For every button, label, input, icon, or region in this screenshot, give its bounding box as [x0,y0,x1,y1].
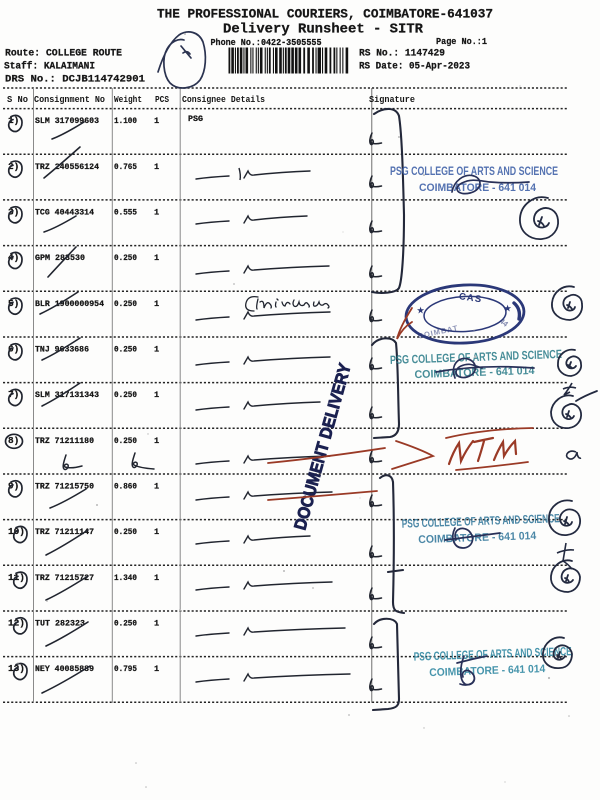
svg-text:1: 1 [154,664,159,674]
svg-text:COIMBATORE - 641 014: COIMBATORE - 641 014 [418,530,537,546]
svg-text:Signature: Signature [369,95,415,105]
svg-text:0.250: 0.250 [114,436,137,446]
svg-text:1.100: 1.100 [114,116,137,126]
svg-text:1: 1 [154,481,159,491]
svg-text:CAS: CAS [458,291,483,305]
svg-text:DOCUMENT DELIVERY: DOCUMENT DELIVERY [291,361,355,532]
svg-text:S No: S No [7,95,28,105]
svg-text:★: ★ [504,304,512,313]
svg-text:1: 1 [154,436,159,446]
svg-text:1.340: 1.340 [114,573,137,583]
svg-text:PSG: PSG [188,114,203,124]
svg-text:Route: COLLEGE ROUTE: Route: COLLEGE ROUTE [5,49,122,60]
svg-text:1: 1 [154,299,159,309]
svg-text:1: 1 [154,116,159,126]
svg-text:GPM 283530: GPM 283530 [35,253,85,263]
svg-text:8): 8) [8,435,19,446]
svg-text:0.795: 0.795 [114,664,137,674]
svg-text:Consignee Details: Consignee Details [182,95,265,105]
svg-text:★: ★ [417,306,425,315]
svg-text:0.860: 0.860 [114,481,137,491]
svg-text:1: 1 [154,618,159,628]
svg-text:COIMBAT: COIMBAT [417,323,459,340]
svg-text:PSG COLLEGE OF ARTS AND SCIENC: PSG COLLEGE OF ARTS AND SCIENCE [401,511,559,531]
svg-text:DRS No.: DCJB114742901: DRS No.: DCJB114742901 [5,74,145,86]
svg-text:0.250: 0.250 [114,299,137,309]
svg-text:0.250: 0.250 [114,253,137,263]
svg-text:1: 1 [154,162,159,172]
svg-text:Staff: KALAIMANI: Staff: KALAIMANI [4,61,95,73]
svg-text:0.765: 0.765 [114,162,137,172]
svg-text:1: 1 [154,253,159,263]
svg-text:TRZ 240556124: TRZ 240556124 [35,162,99,172]
svg-text:TUT 282323: TUT 282323 [35,618,85,628]
svg-text:RS No.: 1147429: RS No.: 1147429 [359,49,445,60]
svg-text:1: 1 [154,207,159,217]
svg-text:44: 44 [498,316,511,329]
svg-text:Consignment No: Consignment No [34,95,105,105]
svg-text:Delivery Runsheet - SITR: Delivery Runsheet - SITR [223,23,424,38]
svg-text:0.555: 0.555 [114,207,137,217]
svg-text:1: 1 [154,390,159,400]
svg-text:COIMBATORE - 641 014: COIMBATORE - 641 014 [429,663,546,679]
svg-text:SLM 317099603: SLM 317099603 [35,116,99,126]
svg-text:1: 1 [154,527,159,537]
svg-text:PCS: PCS [155,95,170,105]
svg-text:0.250: 0.250 [114,344,137,354]
svg-text:Phone No.:0422-3505555: Phone No.:0422-3505555 [211,38,322,48]
svg-text:RS Date: 05-Apr-2023: RS Date: 05-Apr-2023 [359,62,470,73]
svg-text:THE PROFESSIONAL COURIERS, COI: THE PROFESSIONAL COURIERS, COIMBATORE-64… [157,8,493,22]
svg-text:1: 1 [154,573,159,583]
svg-text:0.250: 0.250 [114,618,137,628]
svg-text:BLR 1900000954: BLR 1900000954 [35,299,104,309]
svg-text:Weight: Weight [114,95,142,105]
svg-text:0.250: 0.250 [114,527,137,537]
svg-text:TCG 40443314: TCG 40443314 [35,207,94,217]
svg-text:Page No.:1: Page No.:1 [436,37,488,47]
svg-text:0.250: 0.250 [114,390,137,400]
svg-text:PSG COLLEGE OF ARTS AND SCIENC: PSG COLLEGE OF ARTS AND SCIENCE [413,644,571,664]
svg-text:TRZ 71211180: TRZ 71211180 [35,436,94,446]
svg-text:1: 1 [154,344,159,354]
